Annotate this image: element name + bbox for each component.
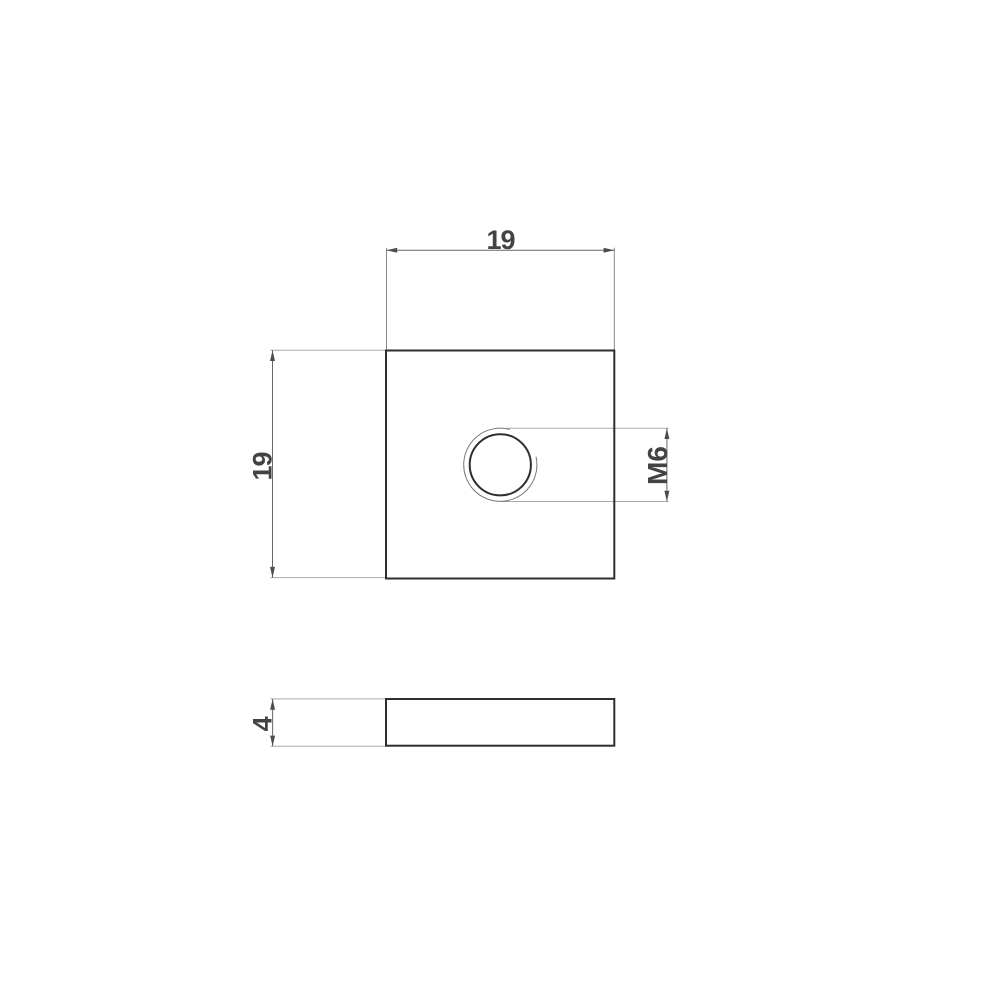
svg-text:19: 19	[486, 225, 515, 255]
svg-text:M6: M6	[642, 446, 673, 485]
svg-text:4: 4	[247, 716, 277, 731]
svg-text:19: 19	[248, 452, 278, 481]
